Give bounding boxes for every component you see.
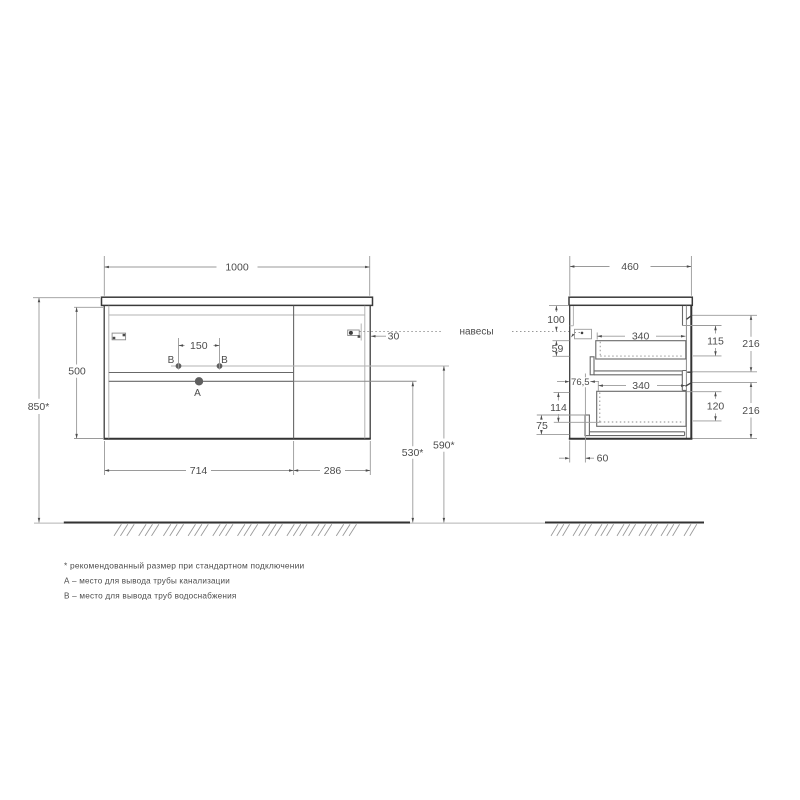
svg-text:В – место для вывода труб водо: В – место для вывода труб водоснабжения (64, 591, 237, 600)
svg-text:A: A (194, 388, 201, 399)
svg-text:286: 286 (324, 465, 342, 477)
svg-text:навесы: навесы (459, 326, 493, 337)
svg-text:100: 100 (547, 314, 565, 326)
svg-text:* рекомендованный размер при с: * рекомендованный размер при стандартном… (64, 561, 304, 571)
svg-text:500: 500 (68, 366, 86, 378)
svg-text:114: 114 (550, 402, 567, 414)
svg-text:850*: 850* (28, 401, 50, 413)
svg-text:150: 150 (190, 340, 208, 352)
svg-text:1000: 1000 (225, 261, 249, 273)
svg-text:115: 115 (707, 335, 724, 347)
svg-text:B: B (221, 355, 228, 366)
svg-text:76,5: 76,5 (571, 377, 590, 388)
svg-text:30: 30 (388, 331, 400, 343)
svg-text:А – место для вывода трубы кан: А – место для вывода трубы канализации (64, 577, 230, 586)
svg-text:340: 340 (632, 380, 650, 392)
svg-text:60: 60 (597, 453, 609, 465)
svg-text:216: 216 (742, 405, 760, 417)
svg-text:590*: 590* (433, 439, 455, 451)
svg-text:530*: 530* (402, 447, 424, 459)
svg-text:460: 460 (621, 261, 639, 273)
svg-text:75: 75 (536, 420, 548, 432)
svg-text:B: B (168, 355, 175, 366)
svg-text:216: 216 (742, 338, 760, 350)
svg-text:59: 59 (552, 343, 564, 355)
svg-text:714: 714 (190, 465, 208, 477)
svg-text:340: 340 (632, 330, 650, 342)
svg-text:120: 120 (707, 401, 725, 413)
